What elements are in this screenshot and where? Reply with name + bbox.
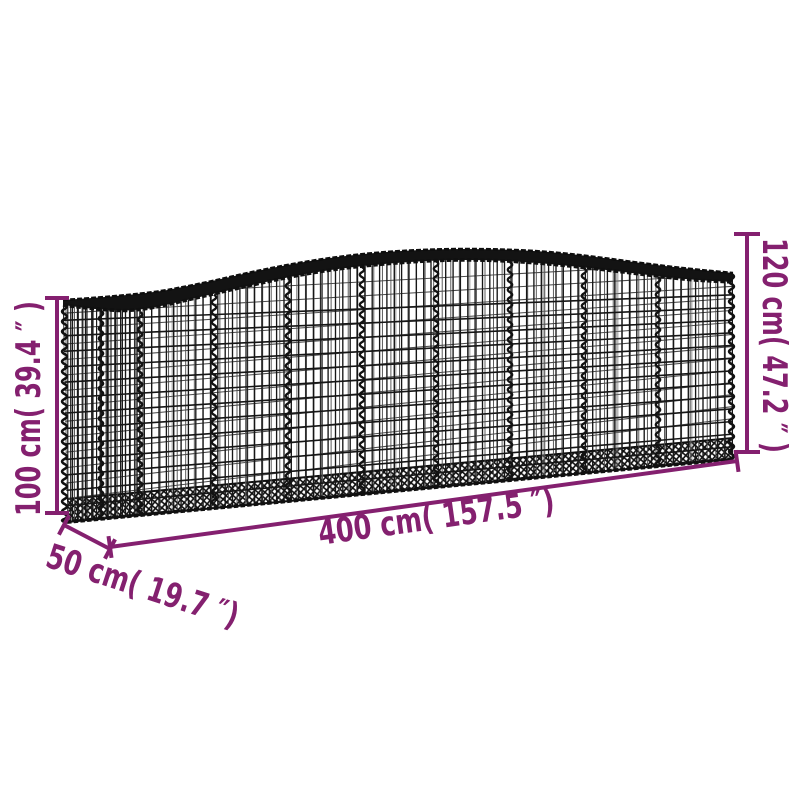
dimension-label-height-right: 120 cm( 47.2 ″ ): [754, 238, 794, 453]
dimension-label-height-left: 100 cm( 39.4 ″ ): [9, 301, 49, 516]
gabion-basket-diagram: 100 cm( 39.4 ″ ) 120 cm( 47.2 ″ ) 400 cm…: [0, 0, 800, 800]
